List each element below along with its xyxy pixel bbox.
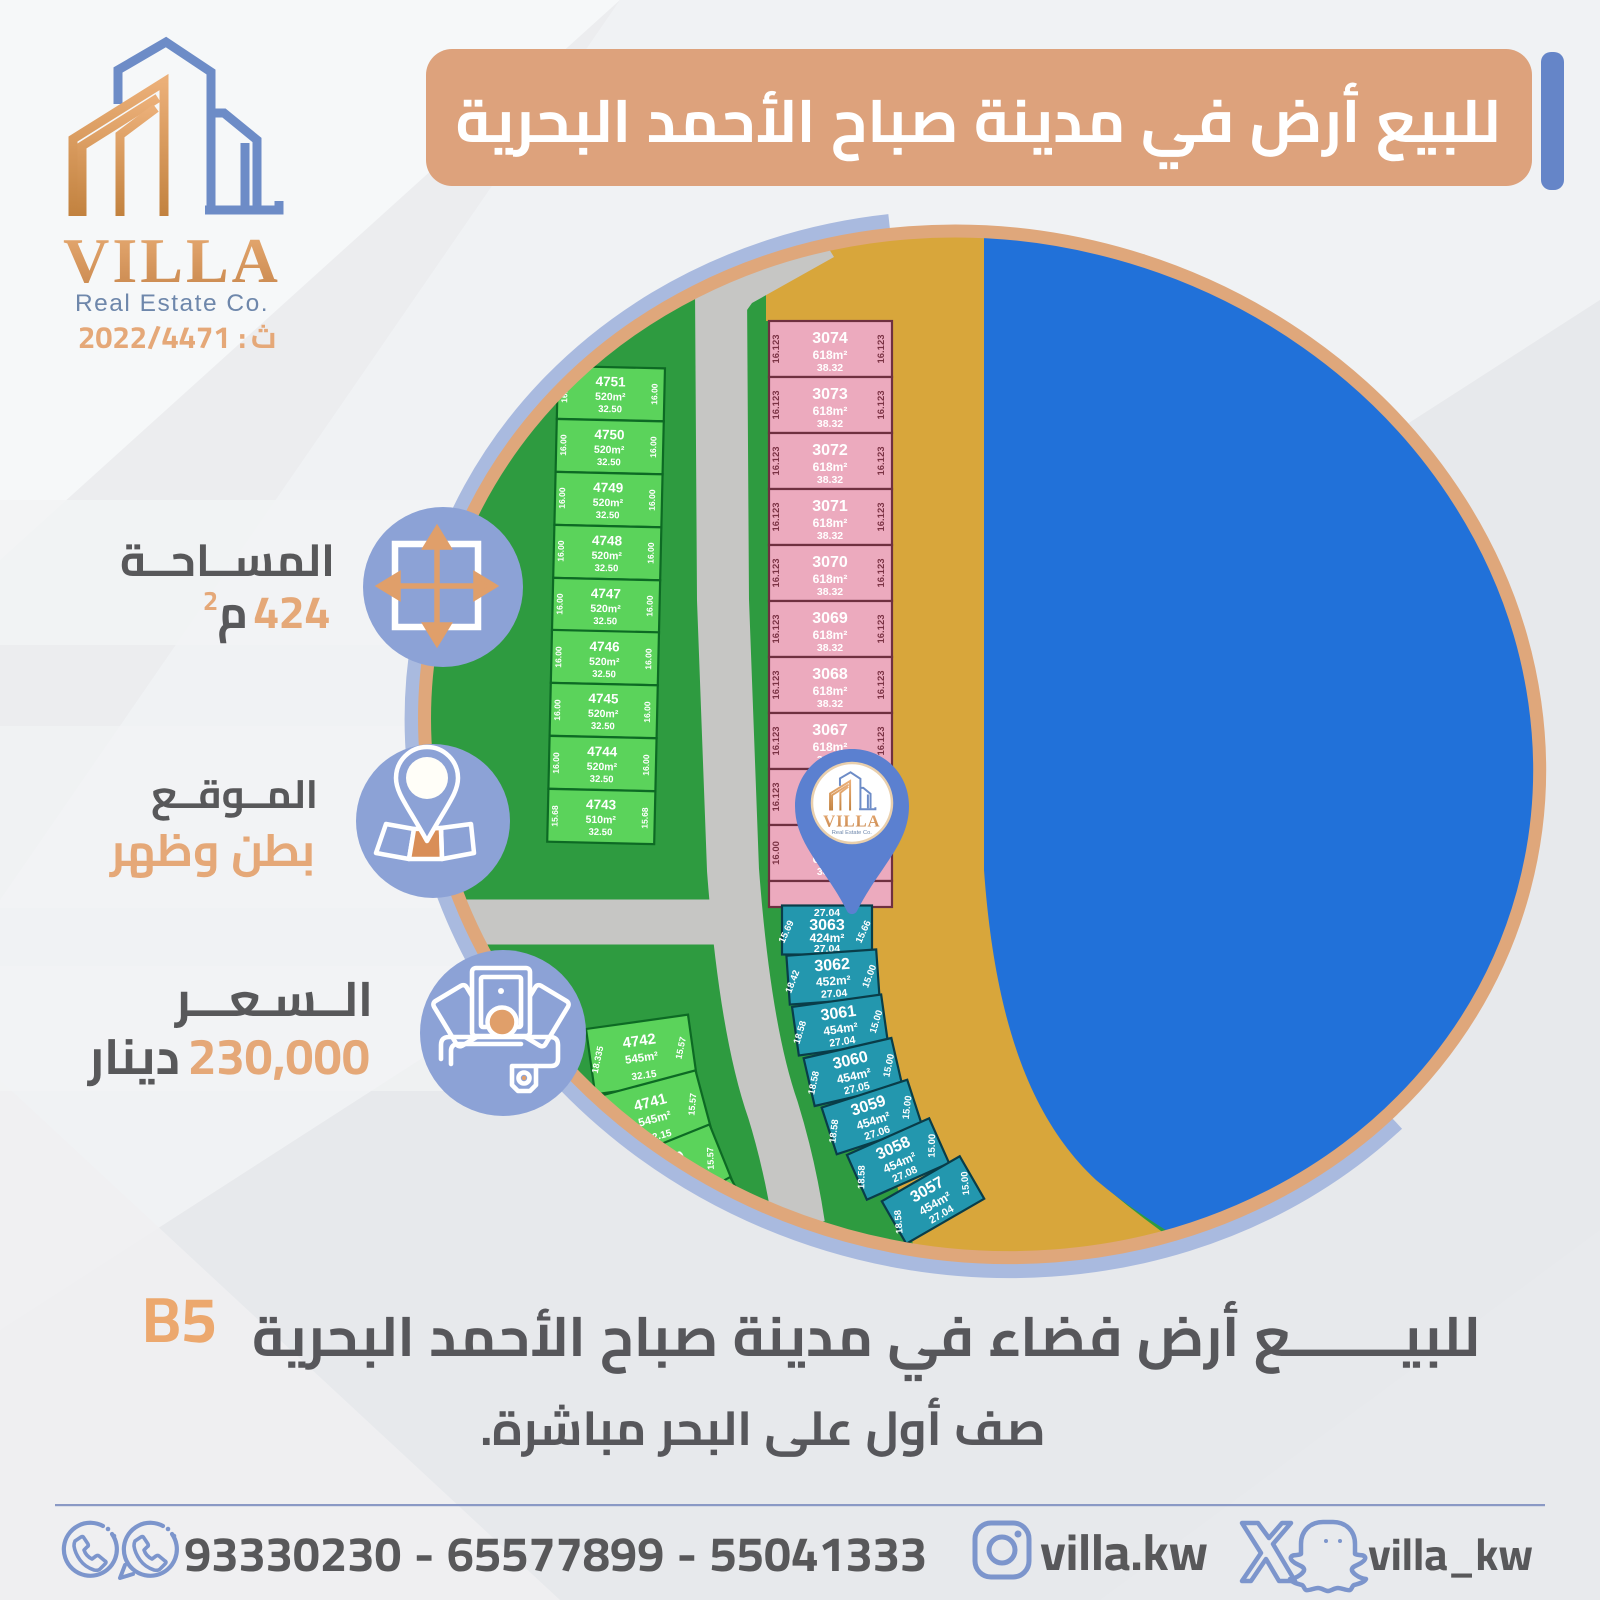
svg-text:4746: 4746 — [589, 639, 620, 655]
svg-text:16.123: 16.123 — [771, 390, 782, 419]
svg-text:38.32: 38.32 — [817, 362, 843, 374]
svg-text:38.32: 38.32 — [817, 474, 843, 486]
svg-text:15.68: 15.68 — [640, 807, 650, 829]
svg-text:16.00: 16.00 — [642, 701, 652, 723]
svg-text:VILLA: VILLA — [63, 225, 281, 296]
svg-text:16.123: 16.123 — [876, 614, 887, 643]
svg-text:32.50: 32.50 — [598, 404, 622, 416]
svg-text:4743: 4743 — [586, 797, 617, 813]
svg-text:16.123: 16.123 — [876, 726, 887, 755]
svg-text:16.123: 16.123 — [876, 334, 887, 363]
svg-text:16.123: 16.123 — [876, 446, 887, 475]
svg-text:16.00: 16.00 — [557, 487, 567, 509]
svg-text:16.00: 16.00 — [771, 841, 782, 865]
svg-text:32.50: 32.50 — [592, 669, 616, 681]
svg-text:38.32: 38.32 — [817, 698, 843, 710]
svg-text:618m²: 618m² — [813, 348, 848, 362]
svg-text:618m²: 618m² — [813, 572, 848, 586]
svg-text:16.00: 16.00 — [646, 542, 656, 564]
svg-text:16.123: 16.123 — [876, 502, 887, 531]
svg-text:3072: 3072 — [812, 442, 848, 459]
svg-text:Real Estate Co.: Real Estate Co. — [832, 830, 872, 836]
svg-text:15.57: 15.57 — [686, 1093, 698, 1116]
svg-text:520m²: 520m² — [587, 761, 618, 774]
svg-text:16.00: 16.00 — [643, 648, 653, 670]
svg-text:3070: 3070 — [812, 554, 848, 571]
svg-text:520m²: 520m² — [591, 550, 622, 563]
svg-text:32.50: 32.50 — [588, 827, 612, 839]
svg-text:16.123: 16.123 — [771, 726, 782, 755]
svg-text:16.00: 16.00 — [554, 593, 564, 615]
svg-text:32.50: 32.50 — [590, 774, 614, 786]
svg-text:3069: 3069 — [812, 610, 848, 627]
svg-text:520m²: 520m² — [593, 497, 624, 510]
svg-text:32.50: 32.50 — [593, 616, 617, 628]
svg-text:16.00: 16.00 — [644, 595, 654, 617]
svg-text:15.00: 15.00 — [959, 1171, 972, 1196]
svg-text:32.50: 32.50 — [596, 510, 620, 522]
svg-text:618m²: 618m² — [813, 628, 848, 642]
svg-text:618m²: 618m² — [813, 516, 848, 530]
svg-text:38.32: 38.32 — [817, 530, 843, 542]
svg-text:3074: 3074 — [812, 330, 848, 347]
svg-text:16.00: 16.00 — [558, 434, 568, 456]
svg-text:16.00: 16.00 — [551, 752, 561, 774]
svg-text:16.123: 16.123 — [771, 334, 782, 363]
svg-text:16.00: 16.00 — [641, 754, 651, 776]
svg-text:38.32: 38.32 — [817, 642, 843, 654]
svg-text:16.00: 16.00 — [556, 540, 566, 562]
svg-text:16.00: 16.00 — [648, 436, 658, 458]
svg-text:520m²: 520m² — [594, 444, 625, 457]
svg-text:510m²: 510m² — [585, 814, 616, 827]
svg-text:4744: 4744 — [587, 744, 618, 760]
svg-text:16.00: 16.00 — [649, 383, 659, 405]
svg-text:618m²: 618m² — [813, 404, 848, 418]
svg-text:18.58: 18.58 — [856, 1165, 867, 1189]
svg-text:18.58: 18.58 — [893, 1209, 906, 1234]
svg-text:16.123: 16.123 — [771, 670, 782, 699]
svg-text:16.123: 16.123 — [876, 390, 887, 419]
svg-text:4750: 4750 — [594, 427, 624, 443]
svg-text:4749: 4749 — [593, 480, 623, 496]
svg-text:520m²: 520m² — [589, 656, 620, 669]
svg-text:32.50: 32.50 — [591, 721, 615, 733]
svg-text:618m²: 618m² — [813, 684, 848, 698]
svg-text:15.68: 15.68 — [550, 805, 560, 827]
svg-text:VILLA: VILLA — [823, 811, 880, 830]
svg-text:16.00: 16.00 — [553, 646, 563, 668]
svg-text:15.00: 15.00 — [927, 1134, 938, 1158]
svg-text:38.32: 38.32 — [817, 418, 843, 430]
svg-text:32.50: 32.50 — [597, 457, 621, 469]
svg-text:3073: 3073 — [812, 386, 848, 403]
svg-text:Real Estate Co.: Real Estate Co. — [75, 290, 269, 317]
svg-text:4747: 4747 — [591, 586, 621, 602]
svg-text:4745: 4745 — [588, 691, 619, 707]
svg-text:4748: 4748 — [592, 533, 623, 549]
svg-text:38.32: 38.32 — [817, 586, 843, 598]
svg-text:520m²: 520m² — [588, 708, 619, 721]
svg-text:16.123: 16.123 — [771, 614, 782, 643]
svg-text:32.50: 32.50 — [594, 563, 618, 575]
svg-text:618m²: 618m² — [813, 460, 848, 474]
svg-text:16.123: 16.123 — [876, 558, 887, 587]
svg-text:16.123: 16.123 — [771, 782, 782, 811]
svg-text:15.57: 15.57 — [705, 1147, 716, 1170]
svg-text:16.00: 16.00 — [552, 699, 562, 721]
svg-text:3071: 3071 — [812, 498, 848, 515]
svg-text:4751: 4751 — [595, 374, 626, 390]
svg-text:16.00: 16.00 — [647, 489, 657, 511]
svg-text:16.123: 16.123 — [771, 502, 782, 531]
svg-text:16.123: 16.123 — [876, 670, 887, 699]
svg-text:16.123: 16.123 — [771, 446, 782, 475]
svg-text:520m²: 520m² — [595, 391, 626, 404]
svg-text:520m²: 520m² — [590, 603, 621, 616]
svg-text:3068: 3068 — [812, 666, 848, 683]
svg-text:3067: 3067 — [812, 722, 848, 739]
svg-text:16.123: 16.123 — [771, 558, 782, 587]
